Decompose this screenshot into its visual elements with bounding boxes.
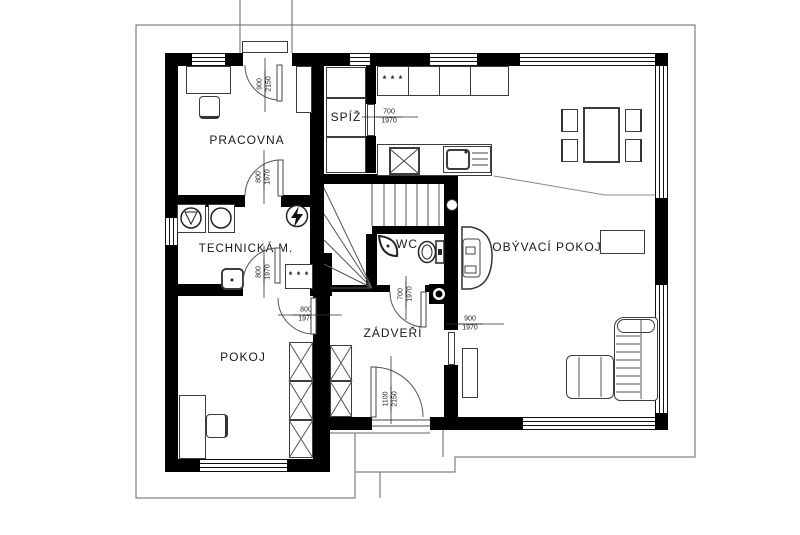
room-label-spiz: SPÍŽ — [331, 110, 362, 124]
door-dimension-label: 7001970 — [376, 109, 402, 126]
door-dimension-label: 11002150 — [383, 386, 400, 412]
wardrobe — [330, 345, 352, 381]
room-label-technicka: TECHNICKÁ M. — [199, 243, 293, 255]
room-label-pokoj: POKOJ — [220, 350, 266, 364]
door-dimension-label: 8001970 — [256, 259, 273, 285]
electrical-panel-icon — [287, 206, 308, 228]
room-label-wc: WC — [396, 237, 418, 251]
door-dimension-label: 7001970 — [398, 281, 415, 307]
floor-covering-line — [494, 176, 655, 195]
dining-chair — [625, 139, 642, 162]
wardrobe — [289, 381, 313, 420]
door-dimension-label: 8001970 — [293, 307, 319, 324]
door-leaf-spiz — [367, 104, 375, 136]
sink-basin — [446, 149, 470, 170]
window — [520, 53, 655, 66]
wall-segment — [281, 195, 310, 207]
wall-segment — [165, 459, 200, 472]
dining-chair — [561, 139, 578, 162]
staircase — [324, 184, 439, 288]
boiler-appliance — [177, 204, 206, 233]
desk — [179, 395, 206, 459]
door-leaf-living — [448, 332, 455, 365]
office-chair — [199, 96, 220, 119]
desk — [186, 66, 231, 94]
window — [430, 53, 477, 66]
entrance-threshold — [372, 420, 430, 426]
wall-segment — [165, 53, 178, 218]
radiator: * * * — [285, 264, 313, 289]
wall-segment — [444, 365, 458, 417]
wall-segment — [370, 53, 430, 66]
corner-basin-icon — [379, 236, 397, 256]
room-label-obyvaci: OBÝVACÍ POKOJ — [492, 240, 601, 254]
wall-segment — [430, 417, 458, 430]
window — [350, 53, 370, 66]
dining-chair — [625, 109, 642, 132]
wall-segment — [366, 136, 376, 173]
water-heater-appliance — [208, 204, 235, 233]
pantry-shelf — [326, 67, 366, 98]
wall-segment — [366, 65, 376, 104]
toilet-icon — [419, 241, 445, 263]
wall-segment — [330, 285, 390, 292]
wall-segment — [655, 413, 668, 430]
exterior-step — [242, 41, 288, 53]
wall-segment — [165, 245, 178, 472]
dining-table — [583, 107, 620, 163]
wardrobe — [289, 342, 313, 381]
cabinet-divider — [408, 66, 409, 96]
wall-segment — [655, 53, 668, 66]
wall-segment — [330, 417, 372, 430]
dining-chair — [561, 109, 578, 132]
sofa-back-cushion — [617, 319, 655, 333]
window — [200, 459, 287, 472]
floor-plan-canvas: * * * * * * PRACOVNA TECHNICKÁ M. SPÍŽ W… — [0, 0, 800, 535]
door-dimension-label: 9002150 — [257, 71, 274, 97]
armchair-icon — [462, 227, 492, 289]
pantry-shelf — [326, 137, 366, 173]
wardrobe — [330, 381, 352, 417]
cabinet-divider — [439, 66, 440, 96]
window — [655, 66, 668, 198]
radiator: * * * — [379, 70, 407, 90]
cabinet-divider — [470, 66, 471, 96]
wardrobe — [289, 420, 313, 458]
window — [523, 417, 655, 430]
wall-segment — [444, 184, 458, 292]
door-dimension-label: 9001970 — [457, 316, 483, 333]
wall-segment — [655, 198, 668, 285]
wall-segment — [225, 53, 243, 66]
utility-sink — [221, 268, 244, 290]
tv-cabinet — [600, 230, 645, 254]
shelf-cabinet — [462, 348, 478, 398]
room-label-zadveri: ZÁDVEŘÍ — [363, 326, 422, 340]
duct-cabinet — [296, 66, 312, 113]
chimney — [429, 284, 449, 304]
office-chair — [206, 414, 228, 438]
wall-segment — [477, 53, 520, 66]
wall-segment — [366, 234, 377, 292]
room-label-pracovna: PRACOVNA — [209, 133, 284, 147]
cooktop — [389, 147, 420, 175]
sofa-seat — [566, 355, 614, 399]
window — [192, 53, 225, 66]
door-dimension-label: 8001970 — [256, 164, 273, 190]
